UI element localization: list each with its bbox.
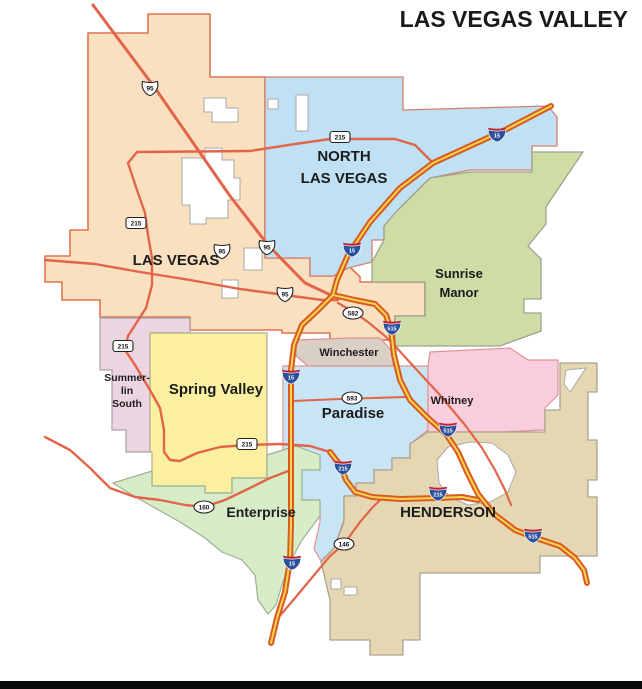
region-label-sunrise-manor-line-2: Manor bbox=[440, 285, 479, 300]
route-215-shield: 215 bbox=[237, 439, 257, 450]
map-title: LAS VEGAS VALLEY bbox=[400, 6, 628, 32]
region-label-summerlin-south-line-3: South bbox=[112, 398, 142, 410]
map-canvas: 9595959521521521521558259316014615151515… bbox=[0, 0, 642, 689]
enclave-henderson-small-1 bbox=[331, 579, 341, 589]
region-label-winchester: Winchester bbox=[319, 347, 379, 359]
shield-number: 593 bbox=[347, 395, 358, 402]
shield-number: 582 bbox=[348, 310, 359, 317]
shield-number: 215 bbox=[338, 467, 347, 473]
shield-number: 95 bbox=[263, 244, 271, 251]
shield-number: 160 bbox=[199, 504, 210, 511]
region-label-sunrise-manor-line-1: Sunrise bbox=[435, 266, 483, 281]
shield-number: 215 bbox=[118, 343, 129, 350]
region-label-enterprise: Enterprise bbox=[226, 504, 295, 520]
shield-number: 215 bbox=[433, 493, 442, 499]
route-215-shield: 215 bbox=[113, 341, 133, 352]
region-label-whitney: Whitney bbox=[431, 395, 475, 407]
route-582-shield: 582 bbox=[343, 307, 363, 319]
region-label-spring-valley: Spring Valley bbox=[169, 381, 264, 398]
enclave-lv-enclave-3 bbox=[296, 95, 308, 131]
shield-number: 515 bbox=[528, 535, 537, 541]
region-label-paradise: Paradise bbox=[322, 405, 385, 422]
route-215-shield: 215 bbox=[330, 132, 350, 143]
shield-number: 15 bbox=[289, 562, 295, 568]
shield-number: 95 bbox=[281, 291, 289, 298]
region-label-summerlin-south-line-1: Summer- bbox=[104, 372, 150, 384]
route-593-shield: 593 bbox=[342, 392, 362, 404]
shield-number: 95 bbox=[218, 248, 226, 255]
route-160-shield: 160 bbox=[194, 501, 214, 513]
shield-number: 15 bbox=[288, 376, 294, 382]
shield-number: 95 bbox=[146, 85, 154, 92]
route-215-shield: 215 bbox=[126, 218, 146, 229]
shield-number: 515 bbox=[443, 429, 452, 435]
shield-number: 215 bbox=[131, 220, 142, 227]
shield-number: 215 bbox=[335, 134, 346, 141]
region-label-henderson: HENDERSON bbox=[400, 504, 496, 521]
region-spring-valley bbox=[150, 333, 267, 493]
shield-number: 515 bbox=[387, 327, 396, 333]
region-label-summerlin-south-line-2: lin bbox=[121, 385, 133, 397]
shield-number: 15 bbox=[494, 134, 500, 140]
enclave-henderson-small-2 bbox=[344, 587, 357, 595]
shield-number: 215 bbox=[242, 441, 253, 448]
shield-number: 146 bbox=[339, 541, 350, 548]
enclave-lv-enclave-6 bbox=[244, 248, 262, 270]
region-label-north-las-vegas-line-2: LAS VEGAS bbox=[301, 170, 388, 187]
shield-number: 15 bbox=[349, 249, 355, 255]
route-146-shield: 146 bbox=[334, 538, 354, 550]
footer-bar bbox=[0, 681, 642, 689]
enclave-lv-enclave-4 bbox=[268, 99, 278, 109]
region-whitney bbox=[428, 348, 558, 432]
region-label-las-vegas: LAS VEGAS bbox=[133, 252, 220, 269]
region-label-north-las-vegas-line-1: NORTH bbox=[317, 148, 370, 165]
